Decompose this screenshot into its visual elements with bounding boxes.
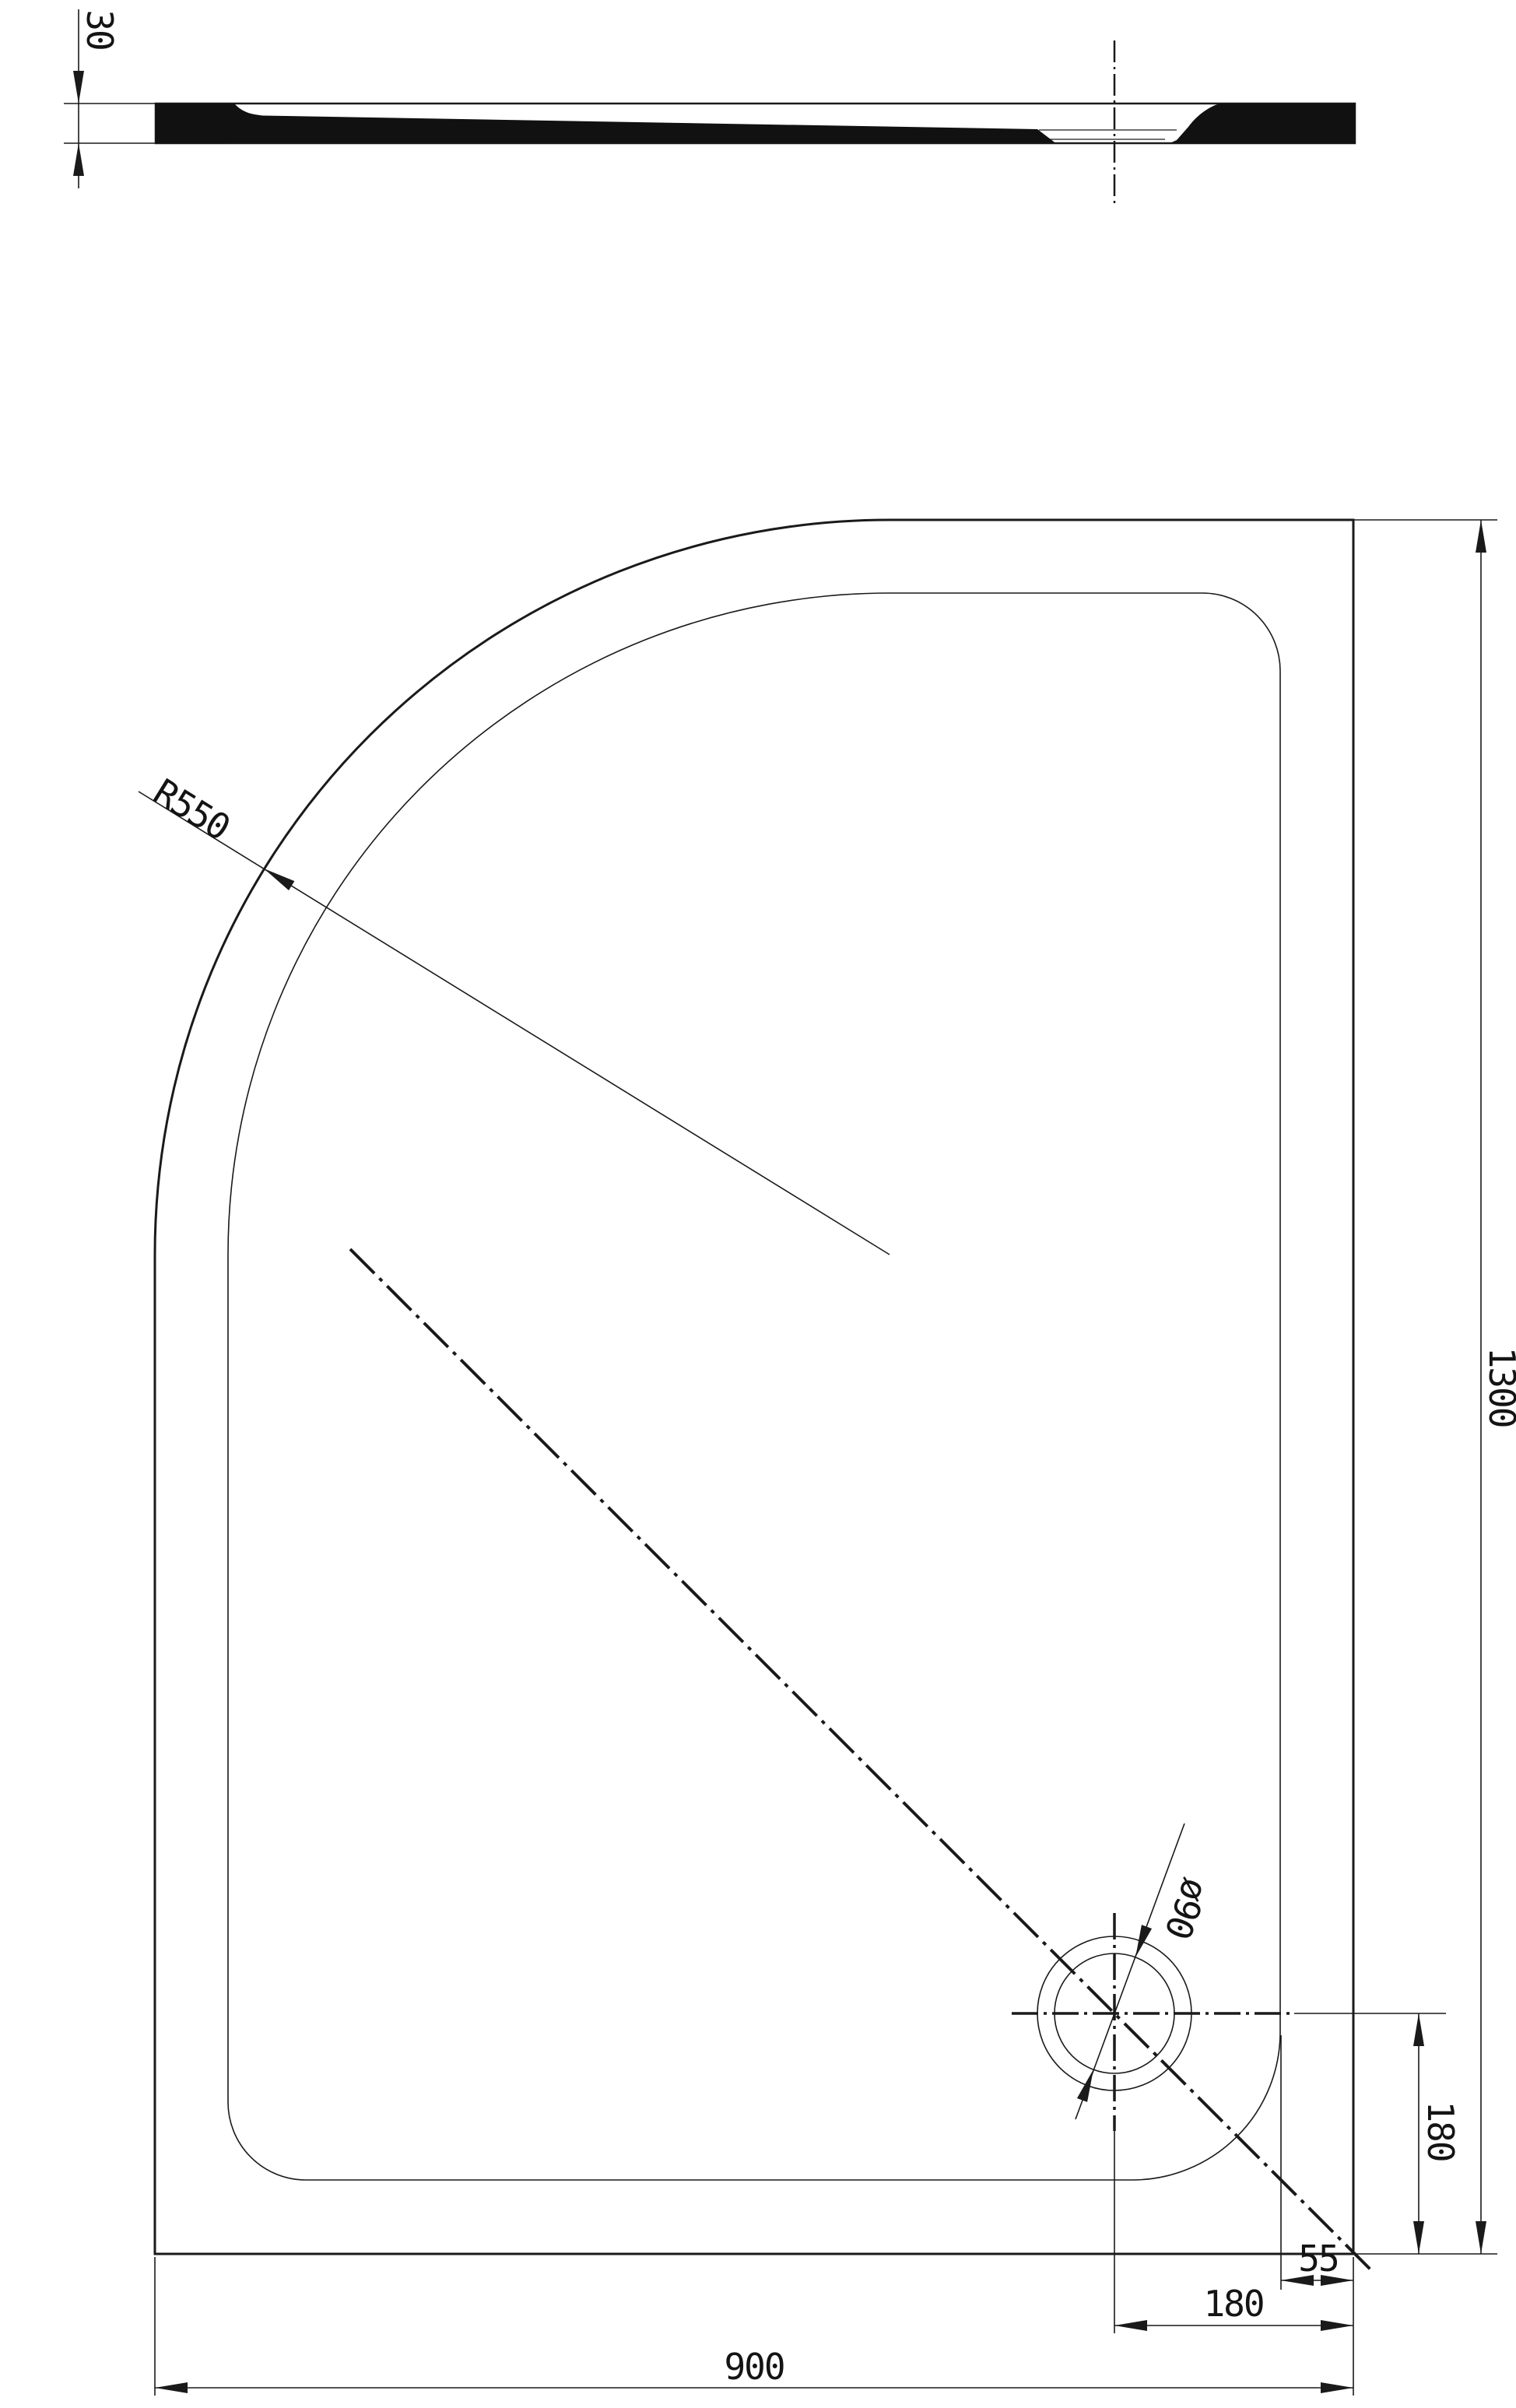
arrowhead — [1114, 2320, 1147, 2331]
profile-right-rim — [1170, 104, 1355, 143]
profile-floor-wedge — [228, 104, 1055, 143]
arrowhead — [1077, 2068, 1099, 2102]
dim-corner-radius: R550 — [139, 770, 890, 1255]
dim-thickness-text: 30 — [79, 9, 121, 49]
arrowhead — [1321, 2382, 1353, 2393]
dim-drain-offset-horizontal-text: 180 — [1203, 2283, 1263, 2325]
arrowhead — [73, 71, 84, 104]
arrowhead — [1413, 2013, 1424, 2046]
profile-left-rim — [156, 104, 228, 143]
arrowhead — [1130, 1925, 1152, 1959]
tray-outer-outline — [155, 520, 1353, 2254]
arrowhead — [1413, 2221, 1424, 2254]
dim-tray-length-text: 1300 — [1481, 1347, 1516, 1427]
dim-edge-inset-text: 55 — [1298, 2238, 1338, 2280]
arrowhead — [1476, 520, 1486, 553]
dim-drain-diameter-text: ø90 — [1156, 1873, 1216, 1944]
dim-corner-radius-text: R550 — [146, 770, 237, 848]
profile-view: 30 — [64, 9, 1355, 207]
shower-tray-drawing: 30 R550 ø90 — [0, 0, 1516, 2408]
dim-thickness: 30 — [73, 9, 121, 188]
arrowhead — [73, 143, 84, 176]
diagonal-centerline — [350, 1249, 1372, 2271]
dim-tray-width-text: 900 — [724, 2346, 784, 2388]
arrowhead — [1321, 2320, 1353, 2331]
dim-edge-inset: 55 — [1281, 2035, 1353, 2290]
dim-drain-diameter: ø90 — [1076, 1824, 1217, 2119]
radius-leader-line — [139, 792, 890, 1255]
dim-drain-offset-vertical-text: 180 — [1419, 2101, 1462, 2161]
cad-sheet: 30 R550 ø90 — [0, 0, 1516, 2408]
plan-view: R550 ø90 55 180 — [139, 520, 1516, 2396]
arrowhead — [155, 2382, 188, 2393]
dim-drain-offset-horizontal: 180 — [1114, 2131, 1353, 2333]
tray-inner-outline — [228, 593, 1280, 2180]
dim-tray-length: 1300 — [1353, 520, 1516, 2254]
dim-tray-width: 900 — [155, 2257, 1353, 2396]
drain — [1012, 1913, 1294, 2131]
arrowhead — [1476, 2221, 1486, 2254]
